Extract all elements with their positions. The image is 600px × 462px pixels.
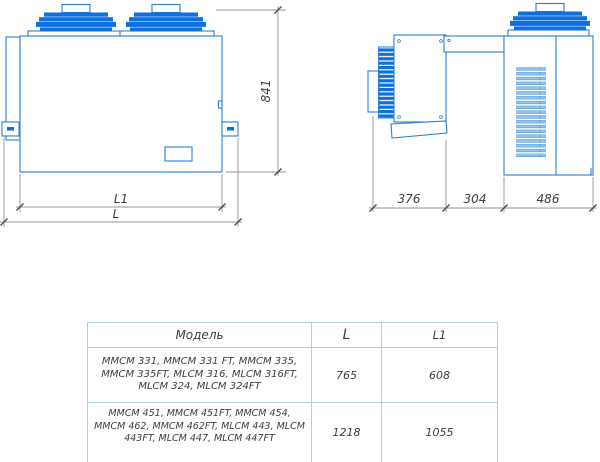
- side-view-drawing: 376 304 486: [368, 4, 597, 213]
- fan-icon: [510, 4, 590, 31]
- top-plate: [28, 31, 214, 36]
- vent-louvers-icon: [516, 67, 546, 158]
- drawings: 841 L1 L: [0, 0, 600, 315]
- l1-value-cell: 608: [382, 348, 498, 403]
- side-view-condenser-section: [504, 4, 593, 176]
- side-view-evaporator-section: [368, 35, 447, 138]
- latch-icon: [219, 101, 223, 108]
- drip-tray-flap: [391, 121, 447, 138]
- screw-icon: [398, 40, 401, 43]
- col-header-model: Модель: [88, 323, 312, 348]
- side-view-wall-frame: [444, 36, 504, 52]
- models-cell: MMCM 331, MMCM 331 FT, MMCM 335, MMCM 33…: [88, 348, 312, 403]
- models-cell: MMCM 451, MMCM 451FT, MMCM 454, MMCM 462…: [88, 403, 312, 462]
- screw-icon: [398, 116, 401, 119]
- screw-icon: [440, 40, 443, 43]
- l1-dimension-label: L1: [114, 192, 128, 206]
- l1-value-cell: 1055: [382, 403, 498, 462]
- l-dimension-label: L: [113, 207, 120, 221]
- table-row: MMCM 451, MMCM 451FT, MMCM 454, MMCM 462…: [88, 403, 498, 462]
- fan-icon: [36, 5, 116, 32]
- col-header-l: L: [312, 323, 382, 348]
- fan-icon: [126, 5, 206, 32]
- dimensions-table: Модель L L1 MMCM 331, MMCM 331 FT, MMCM …: [87, 322, 498, 462]
- evaporator-depth-label: 376: [398, 192, 421, 206]
- screw-icon: [448, 39, 450, 41]
- right-bracket-hole-icon: [227, 127, 234, 131]
- evaporator-fan-grille-icon: [379, 47, 395, 118]
- col-header-l1: L1: [382, 323, 498, 348]
- technical-drawing-page: 841 L1 L: [0, 0, 600, 462]
- screw-icon: [440, 116, 443, 119]
- wall-gap-label: 304: [464, 192, 487, 206]
- table-row: MMCM 331, MMCM 331 FT, MMCM 335, MMCM 33…: [88, 348, 498, 403]
- l-value-cell: 765: [312, 348, 382, 403]
- height-dimension-label: 841: [259, 80, 273, 103]
- evaporator-panel: [394, 35, 446, 122]
- condenser-depth-label: 486: [537, 192, 560, 206]
- front-view-unit: [2, 5, 238, 173]
- mounting-frame: [444, 36, 504, 52]
- left-bracket-hole-icon: [7, 127, 14, 131]
- wall-tab: [368, 71, 379, 112]
- table-header-row: Модель L L1: [88, 323, 498, 348]
- condenser-top-plate: [508, 30, 589, 36]
- nameplate: [165, 147, 192, 161]
- l-value-cell: 1218: [312, 403, 382, 462]
- front-view-drawing: 841 L1 L: [0, 5, 286, 228]
